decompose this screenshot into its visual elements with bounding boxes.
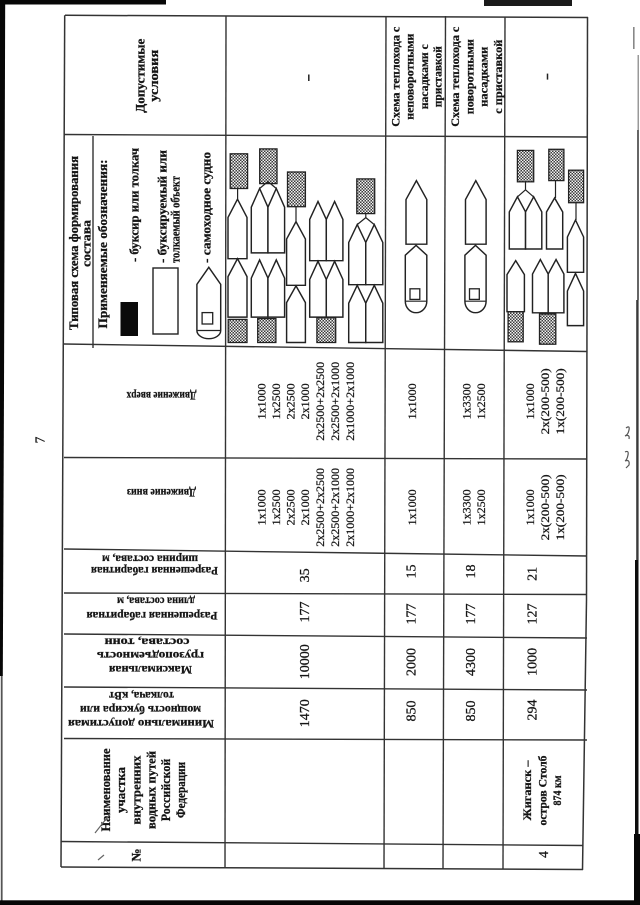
svg-text:1х1000: 1х1000 xyxy=(255,489,269,525)
svg-text:2х2500+2х1000: 2х2500+2х1000 xyxy=(328,362,342,441)
svg-text:2х(200-500): 2х(200-500) xyxy=(538,368,552,434)
svg-text:2х2500: 2х2500 xyxy=(284,383,298,419)
svg-text:- буксир или толкач: - буксир или толкач xyxy=(128,148,142,262)
svg-text:грузоподъемность: грузоподъемность xyxy=(96,649,204,663)
svg-text:2000: 2000 xyxy=(405,648,420,676)
svg-text:2х1000+2х1000: 2х1000+2х1000 xyxy=(343,362,357,441)
svg-text:длина состава, м: длина состава, м xyxy=(117,595,195,609)
svg-text:насадками: насадками xyxy=(477,47,491,107)
svg-text:условия: условия xyxy=(146,50,161,102)
svg-text:Движение вверх: Движение вверх xyxy=(127,389,197,403)
svg-text:850: 850 xyxy=(405,701,420,722)
svg-text:внутренних: внутренних xyxy=(129,755,144,824)
svg-text:35: 35 xyxy=(298,568,313,582)
svg-text:2х2500+2х2500: 2х2500+2х2500 xyxy=(313,468,327,547)
svg-text:1000: 1000 xyxy=(526,648,541,676)
svg-text:21: 21 xyxy=(526,567,541,581)
svg-text:1470: 1470 xyxy=(298,699,313,727)
svg-text:Российской: Российской xyxy=(158,758,173,821)
svg-text:толкача, кВт: толкача, кВт xyxy=(109,689,174,703)
svg-text:с приставкой: с приставкой xyxy=(491,40,505,114)
svg-text:Минимально допустимая: Минимально допустимая xyxy=(67,717,214,731)
svg-text:приставкой: приставкой xyxy=(430,46,444,107)
svg-text:294: 294 xyxy=(526,700,541,721)
svg-text:ширина состава, м: ширина состава, м xyxy=(102,553,198,567)
svg-text:Движение вниз: Движение вниз xyxy=(127,486,196,500)
svg-text:2х2500: 2х2500 xyxy=(284,489,298,525)
svg-text:1х3300: 1х3300 xyxy=(459,489,473,525)
svg-text:2х2500+2х2500: 2х2500+2х2500 xyxy=(313,362,327,441)
svg-text:неповоротными: неповоротными xyxy=(403,34,417,120)
svg-text:1х(200-500): 1х(200-500) xyxy=(553,368,567,434)
svg-text:18: 18 xyxy=(464,565,479,579)
svg-text:Схема теплохода с: Схема теплохода с xyxy=(448,26,462,127)
svg-text:Схема теплохода с: Схема теплохода с xyxy=(388,26,402,127)
svg-text:1х3300: 1х3300 xyxy=(459,383,473,419)
svg-text:874 км: 874 км xyxy=(550,776,564,806)
svg-text:- буксируемый или: - буксируемый или xyxy=(156,150,170,263)
svg-text:1х1000: 1х1000 xyxy=(523,489,537,525)
svg-text:2х1000+2х1000: 2х1000+2х1000 xyxy=(343,468,357,547)
svg-text:1х2500: 1х2500 xyxy=(474,489,488,525)
svg-text:10000: 10000 xyxy=(298,644,313,679)
svg-text:мощность буксира или: мощность буксира или xyxy=(80,703,201,717)
svg-text:1х1000: 1х1000 xyxy=(405,383,419,419)
svg-text:остров Столб: остров Столб xyxy=(536,756,550,826)
svg-text:7: 7 xyxy=(33,436,48,443)
svg-text:1х2500: 1х2500 xyxy=(269,383,283,419)
svg-text:850: 850 xyxy=(464,701,479,722)
svg-text:177: 177 xyxy=(405,604,420,625)
svg-text:4: 4 xyxy=(536,851,551,858)
svg-text:состава, тонн: состава, тонн xyxy=(104,636,189,650)
svg-text:участка: участка xyxy=(113,767,128,813)
svg-text:толкаемый объект: толкаемый объект xyxy=(169,176,183,263)
svg-text:1х1000: 1х1000 xyxy=(405,489,419,525)
svg-text:1х(200-500): 1х(200-500) xyxy=(553,474,567,540)
svg-text:1х1000: 1х1000 xyxy=(523,383,537,419)
svg-text:1х2500: 1х2500 xyxy=(474,383,488,419)
svg-text:водных путей: водных путей xyxy=(143,751,158,829)
svg-text:состава: состава xyxy=(80,219,94,267)
svg-text:№: № xyxy=(129,848,144,861)
svg-text:насадками с: насадками с xyxy=(417,44,431,110)
svg-text:Жиганск –: Жиганск – xyxy=(520,759,534,820)
svg-text:177: 177 xyxy=(464,604,479,625)
svg-text:Федерации: Федерации xyxy=(173,762,188,818)
svg-text:поворотными: поворотными xyxy=(462,39,476,114)
svg-text:127: 127 xyxy=(526,604,541,625)
svg-text:Максимальная: Максимальная xyxy=(109,663,192,677)
svg-text:177: 177 xyxy=(298,602,313,623)
svg-text:2х(200-500): 2х(200-500) xyxy=(538,474,552,540)
svg-text:15: 15 xyxy=(405,565,420,579)
svg-text:2х2500+2х1000: 2х2500+2х1000 xyxy=(328,468,342,547)
svg-text:1х1000: 1х1000 xyxy=(255,383,269,419)
svg-text:1х2500: 1х2500 xyxy=(269,489,283,525)
svg-text:Применяемые обозначения:: Применяемые обозначения: xyxy=(96,160,110,329)
svg-text:4300: 4300 xyxy=(464,648,479,676)
svg-text:2х1000: 2х1000 xyxy=(298,489,312,525)
svg-text:Разрешенная габаритная: Разрешенная габаритная xyxy=(86,609,217,623)
svg-text:- самоходное судно: - самоходное судно xyxy=(200,152,214,263)
svg-text:2х1000: 2х1000 xyxy=(298,383,312,419)
